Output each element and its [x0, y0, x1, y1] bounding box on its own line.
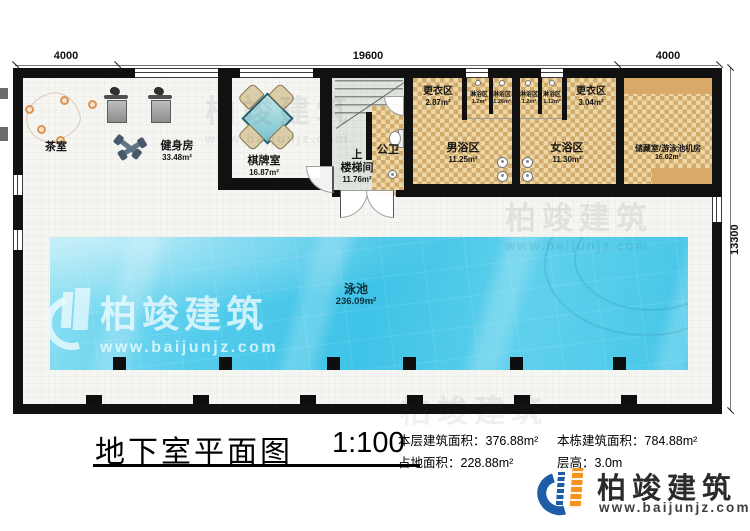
cushion-icon [60, 96, 69, 105]
watermark-url: www.baijunjz.com [205, 131, 353, 146]
watermark-url: www.baijunjz.com [505, 238, 653, 253]
shower-head-icon [525, 80, 531, 86]
wall [13, 404, 722, 414]
wall [13, 68, 135, 78]
room-area: 11.30m² [551, 155, 584, 165]
dimension-label: 19600 [353, 50, 384, 62]
stat-value: 228.88m² [461, 456, 514, 470]
room-label-shower1: 淋浴区 1.2m² [470, 92, 488, 106]
wall [13, 195, 23, 230]
shower-head-icon [499, 80, 505, 86]
room-name: 楼梯间 [341, 162, 374, 175]
floor-drain-icon [388, 170, 397, 179]
watermark-text: 柏竣建筑 [505, 193, 653, 238]
room-name: 茶室 [45, 141, 67, 154]
watermark: 柏竣建筑 www.baijunjz.com [205, 86, 353, 146]
watermark-logo-icon [45, 288, 95, 340]
room-name: 女浴区 [551, 142, 584, 155]
watermark-text: 柏竣建筑 [205, 86, 353, 131]
wall [538, 78, 542, 114]
treadmill-icon [147, 90, 173, 121]
window [466, 68, 488, 78]
dimension-label: 4000 [656, 50, 680, 62]
cushion-icon [25, 105, 34, 114]
room-name: 健身房 [161, 140, 194, 153]
room-name: 泳池 [336, 282, 377, 296]
column [86, 395, 102, 404]
room-label-shower4: 淋浴区 1.12m² [543, 92, 561, 106]
room-label-pool: 泳池 236.09m² [336, 282, 377, 308]
wall [13, 250, 23, 414]
room-area: 11.25m² [447, 155, 480, 165]
wall [712, 222, 722, 414]
plan-scale: 1:100 [332, 427, 405, 460]
room-area: 236.09m² [336, 296, 377, 307]
room-label-women-bath: 女浴区 11.30m² [551, 142, 584, 165]
stat-label: 本层建筑面积： [398, 434, 486, 448]
shower-stall-edge [467, 118, 512, 119]
room-area: 1.2m² [470, 99, 488, 106]
basement-floor-plan: 柏竣建筑 www.baijunjz.com 柏竣建筑 www.baijunjz.… [0, 0, 750, 531]
stat-floor-area: 本层建筑面积：376.88m² [398, 430, 538, 449]
window [13, 175, 23, 195]
room-name: 棋牌室 [248, 155, 281, 168]
column [193, 395, 209, 404]
room-label-stairs: 上 楼梯间 11.76m² [341, 149, 374, 185]
room-label-women-changing: 更衣区 3.04m² [576, 86, 606, 108]
watermark-text: 柏竣建筑 [400, 386, 548, 431]
shower-head-icon [475, 80, 481, 86]
wall [313, 68, 466, 78]
window [712, 195, 722, 222]
room-area: 1.26m² [493, 99, 511, 106]
room-area: 3.04m² [576, 98, 606, 108]
stat-value: 784.88m² [645, 434, 698, 448]
washbasin-icon [522, 171, 533, 182]
room-label-shower3: 淋浴区 1.2m² [520, 92, 538, 106]
column [219, 357, 232, 370]
window [135, 68, 218, 78]
room-area: 1.12m² [543, 99, 561, 106]
room-name: 男浴区 [447, 142, 480, 155]
watermark-fragment [0, 88, 8, 99]
room-name: 储藏室/游泳池机房 [635, 144, 701, 154]
watermark-text: 柏竣建筑 [100, 284, 278, 338]
treadmill-icon [103, 90, 129, 121]
wall [562, 78, 567, 120]
wall [712, 68, 722, 195]
watermark: 柏竣建筑 www.baijunjz.com [505, 193, 653, 253]
room-label-men-bath: 男浴区 11.25m² [447, 142, 480, 165]
room-area: 16.02m² [635, 154, 701, 162]
column [327, 357, 340, 370]
room-area: 33.48m² [161, 153, 194, 163]
stat-building-area: 本栋建筑面积：784.88m² [557, 430, 697, 449]
storage-shelf-top [624, 78, 712, 94]
wall [13, 68, 23, 175]
wall [616, 78, 624, 197]
column [613, 357, 626, 370]
watermark: 柏竣建筑 www.baijunjz.com [100, 284, 278, 357]
washbasin-icon [497, 157, 508, 168]
column [113, 357, 126, 370]
washbasin-icon [497, 171, 508, 182]
washbasin-icon [522, 157, 533, 168]
shower-head-icon [549, 80, 555, 86]
window [13, 230, 23, 250]
room-label-gym: 健身房 33.48m² [161, 140, 194, 163]
room-area: 11.76m² [341, 175, 374, 185]
logo-building-orange [566, 464, 586, 512]
brand-logo-icon [537, 463, 595, 519]
cushion-icon [37, 125, 46, 134]
room-label-wc: 公卫 [377, 144, 399, 157]
room-area: 2.87m² [423, 98, 453, 108]
wall [404, 78, 413, 196]
stairs-direction: 上 [341, 149, 374, 162]
watermark: 柏竣建筑 [400, 386, 548, 431]
wall [396, 190, 404, 197]
column [621, 395, 637, 404]
room-name: 更衣区 [576, 86, 606, 98]
column [403, 357, 416, 370]
room-area: 1.2m² [520, 99, 538, 106]
window [541, 68, 563, 78]
stat-value: 376.88m² [486, 434, 539, 448]
column [300, 395, 316, 404]
brand-url: www.baijunjz.com [599, 500, 750, 515]
wall [512, 78, 520, 197]
dimension-label: 4000 [54, 50, 78, 62]
wall [563, 68, 722, 78]
stat-footprint-area: 占地面积：228.88m² [398, 452, 513, 471]
watermark-fragment [0, 127, 8, 141]
room-label-chess: 棋牌室 16.87m² [248, 155, 281, 178]
room-label-shower2: 淋浴区 1.26m² [493, 92, 511, 106]
room-label-men-changing: 更衣区 2.87m² [423, 86, 453, 108]
watermark-url: www.baijunjz.com [100, 339, 278, 357]
shower-stall-edge [520, 118, 562, 119]
title-underline [93, 464, 420, 467]
wall [488, 68, 541, 78]
cushion-icon [88, 100, 97, 109]
wall [462, 78, 467, 120]
room-label-tea: 茶室 [45, 141, 67, 154]
room-label-storage: 储藏室/游泳池机房 16.02m² [635, 144, 701, 162]
stat-label: 占地面积： [398, 456, 461, 470]
stat-label: 本栋建筑面积： [557, 434, 645, 448]
dimension-label: 13300 [729, 205, 741, 255]
window [240, 68, 313, 78]
room-area: 16.87m² [248, 168, 281, 178]
room-name: 公卫 [377, 144, 399, 157]
wall [218, 68, 240, 78]
column [510, 357, 523, 370]
room-name: 更衣区 [423, 86, 453, 98]
